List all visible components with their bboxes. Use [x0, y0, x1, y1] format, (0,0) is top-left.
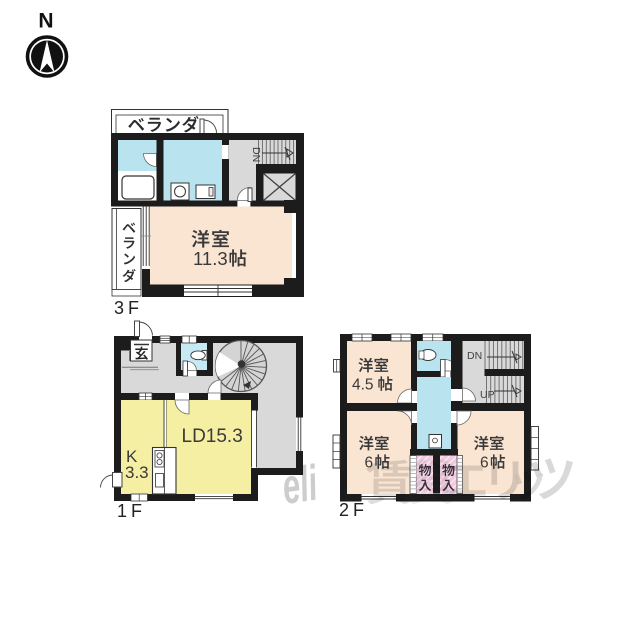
- svg-text:UP: UP: [480, 389, 495, 401]
- svg-text:F: F: [131, 501, 142, 521]
- svg-text:DN: DN: [467, 350, 482, 362]
- svg-text:4.5: 4.5: [352, 377, 374, 394]
- svg-text:N: N: [38, 10, 53, 33]
- svg-text:LD15.3: LD15.3: [182, 426, 243, 447]
- svg-text:DN: DN: [250, 147, 262, 162]
- svg-text:F: F: [128, 298, 139, 318]
- svg-text:3.3: 3.3: [125, 463, 149, 482]
- svg-text:2: 2: [339, 500, 349, 520]
- svg-text:11.3: 11.3: [193, 248, 228, 269]
- svg-text:1: 1: [117, 501, 127, 521]
- svg-text:3: 3: [114, 298, 124, 318]
- svg-text:F: F: [353, 500, 364, 520]
